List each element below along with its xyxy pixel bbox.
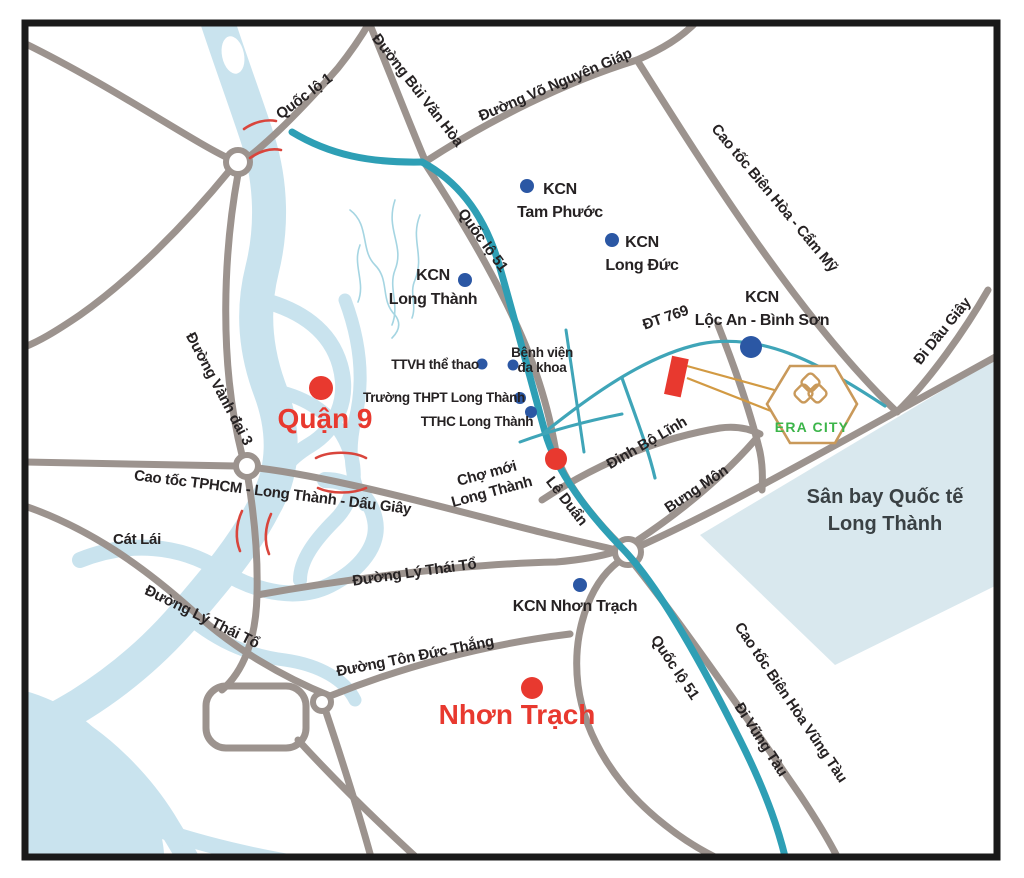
label-duong-vo-nguyen-giap: Đường Võ Nguyên Giáp [476, 45, 634, 125]
road-r1-southwest [22, 170, 230, 348]
label-ttvh-the-thao: TTVH thể thao [391, 357, 479, 372]
markers-layer [309, 179, 762, 699]
kcn-nhon-trach-dot [573, 578, 587, 592]
kcn-tam-phuoc-dot [520, 179, 534, 193]
cho-moi-long-thanh-dot [545, 448, 567, 470]
label-truong-thpt-long-thanh: Trường THPT Long Thành [363, 390, 525, 405]
label-dt-769: ĐT 769 [640, 302, 690, 334]
era-city-site-marker [664, 356, 689, 398]
label-quan-9: Quận 9 [278, 403, 373, 434]
label-cho-moi-long-thanh: Chợ mớiLong Thành [445, 455, 534, 511]
roundabout-northwest [226, 150, 250, 174]
kcn-long-duc-dot [605, 233, 619, 247]
road-town-loop [206, 686, 306, 748]
roundabout-south [313, 693, 331, 711]
road-loop-south-2 [298, 740, 430, 870]
label-era-city: ERA CITY [775, 419, 849, 435]
label-benh-vien-da-khoa: Bệnh việnđa khoa [511, 345, 573, 375]
street-teal-cross [520, 414, 622, 442]
label-tthc-long-thanh: TTHC Long Thành [421, 414, 534, 429]
location-map: Quốc lộ 1Đường Bùi Văn HòaĐường Võ Nguyê… [0, 0, 1024, 878]
road-expressway-west [22, 462, 236, 466]
nhon-trach-dot [521, 677, 543, 699]
label-quoc-lo-1: Quốc lộ 1 [273, 70, 336, 123]
label-dinh-bo-linh: Đinh Bộ Lĩnh [604, 413, 690, 473]
era-pointer-line-lower [687, 378, 771, 411]
road-quoc-lo-51-link [292, 132, 422, 162]
kcn-loc-an-binh-son-dot [740, 336, 762, 358]
label-duong-bui-van-hoa: Đường Bùi Văn Hòa [368, 31, 467, 151]
road-quoc-lo-1-west [22, 42, 228, 158]
label-duong-ton-duc-thang: Đường Tôn Đức Thắng [335, 632, 496, 680]
quan-9-dot [309, 376, 333, 400]
kcn-long-thanh-dot [458, 273, 472, 287]
label-cat-lai: Cát Lái [113, 531, 161, 548]
label-nhon-trach: Nhơn Trạch [439, 699, 596, 730]
map-canvas: Quốc lộ 1Đường Bùi Văn HòaĐường Võ Nguyê… [0, 0, 1024, 878]
label-kcn-nhon-trach: KCN Nhơn Trạch [513, 598, 638, 615]
roundabout-vanh-dai-3 [236, 455, 258, 477]
